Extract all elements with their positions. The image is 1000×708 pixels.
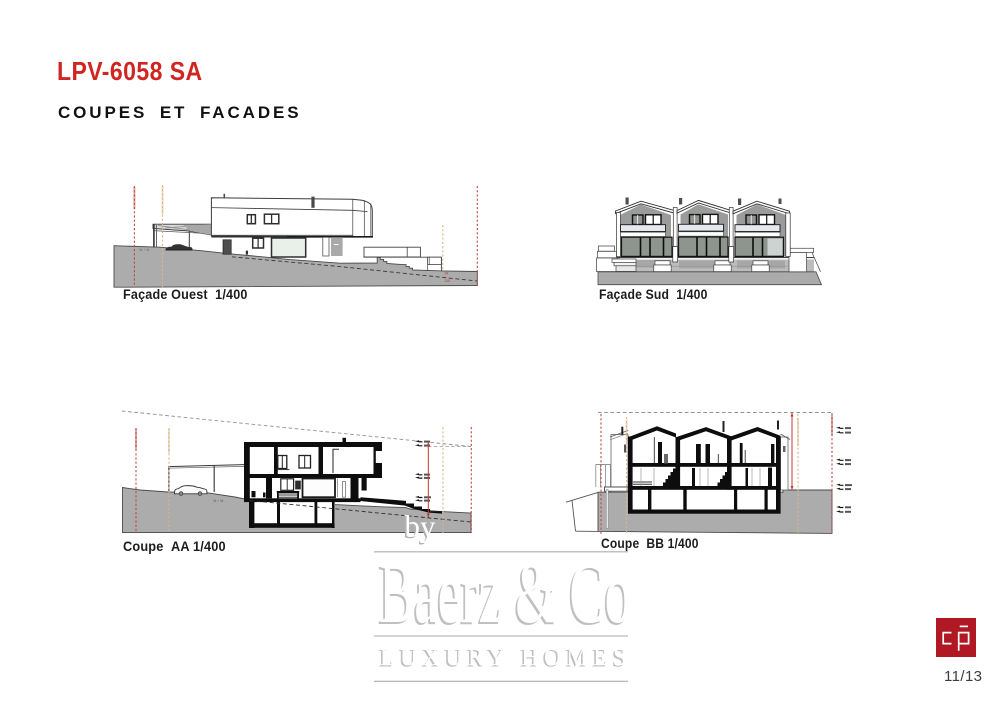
- svg-text:Baerz & Co: Baerz & Co: [379, 544, 631, 641]
- svg-text:3k + 3k: 3k + 3k: [213, 499, 224, 503]
- svg-text:by: by: [405, 509, 437, 544]
- svg-text:3k + 3k: 3k + 3k: [139, 248, 150, 252]
- svg-text:315: 315: [445, 279, 451, 283]
- svg-text:34: 34: [445, 272, 449, 276]
- svg-text:LUXURY HOMES: LUXURY HOMES: [380, 644, 632, 671]
